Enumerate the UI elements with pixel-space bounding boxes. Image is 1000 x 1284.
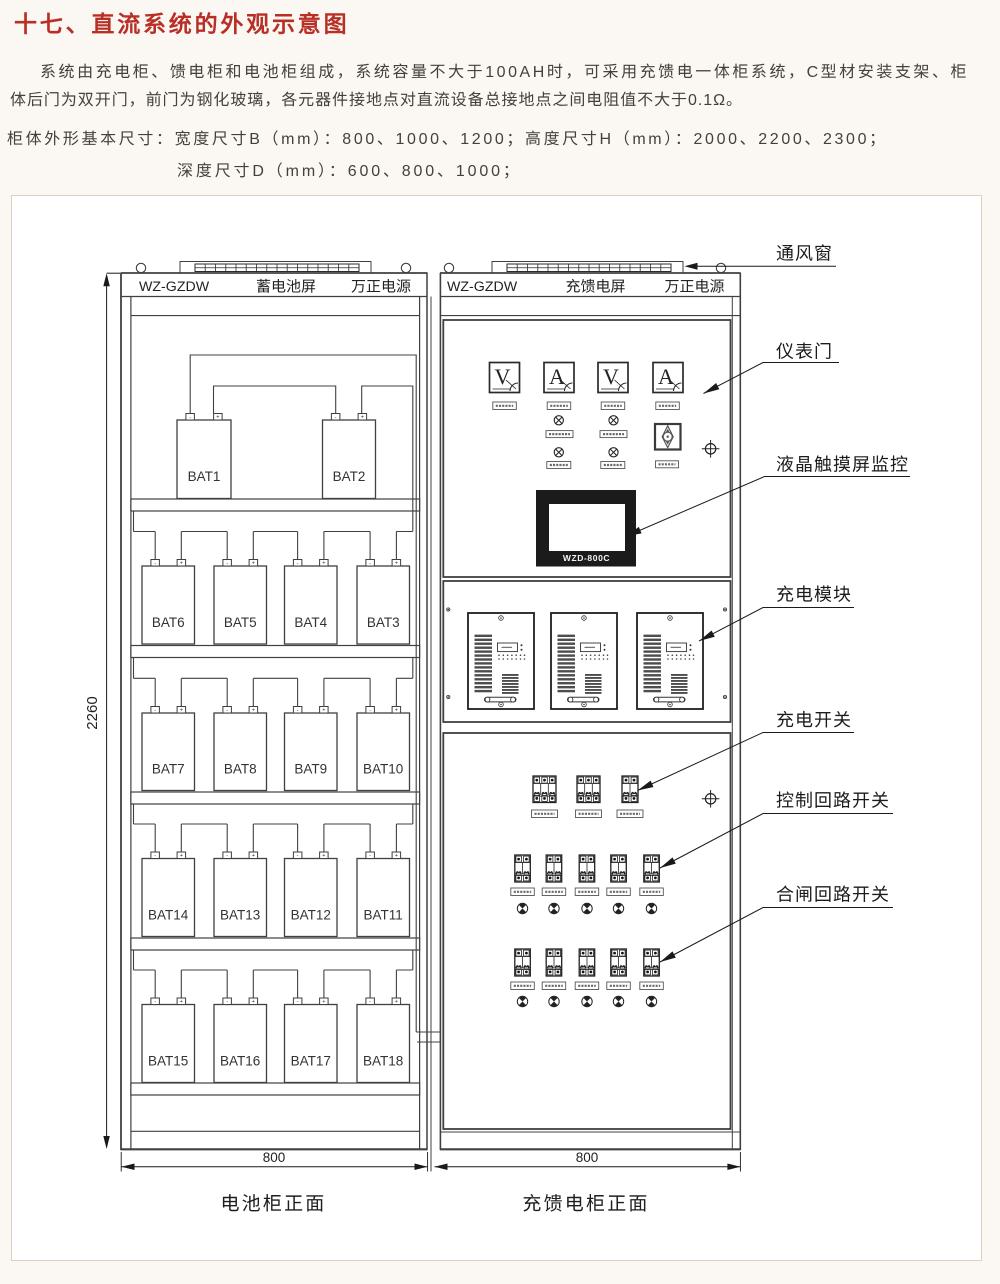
svg-text:BAT15: BAT15 — [148, 1053, 188, 1068]
svg-text:+: + — [395, 560, 398, 566]
svg-text:BAT17: BAT17 — [291, 1053, 331, 1068]
svg-text:-: - — [154, 560, 156, 566]
svg-text:充电开关: 充电开关 — [776, 706, 852, 732]
svg-text:+: + — [361, 414, 364, 420]
svg-text:A: A — [658, 364, 674, 389]
svg-text:+: + — [180, 853, 183, 859]
svg-text:BAT11: BAT11 — [364, 907, 403, 922]
svg-text:WZ-GZDW: WZ-GZDW — [447, 276, 518, 296]
svg-text:-: - — [369, 560, 371, 566]
svg-text:-: - — [297, 560, 299, 566]
svg-text:合闸回路开关: 合闸回路开关 — [776, 881, 890, 907]
svg-text:-: - — [226, 853, 228, 859]
svg-text:BAT5: BAT5 — [224, 615, 257, 630]
svg-text:-: - — [189, 414, 191, 420]
svg-text:-: - — [369, 853, 371, 859]
svg-text:+: + — [395, 853, 398, 859]
svg-text:BAT8: BAT8 — [224, 762, 257, 777]
svg-text:+: + — [322, 853, 325, 859]
svg-text:-: - — [154, 853, 156, 859]
svg-text:-: - — [335, 414, 337, 420]
svg-text:BAT12: BAT12 — [291, 907, 331, 922]
svg-text:充电模块: 充电模块 — [776, 581, 852, 607]
svg-text:-: - — [226, 560, 228, 566]
svg-text:-: - — [369, 999, 371, 1005]
svg-text:+: + — [252, 560, 255, 566]
svg-text:+: + — [322, 707, 325, 713]
svg-text:+: + — [322, 999, 325, 1005]
svg-text:WZD-800C: WZD-800C — [563, 553, 610, 563]
svg-text:+: + — [395, 999, 398, 1005]
svg-text:蓄电池屏: 蓄电池屏 — [256, 276, 316, 297]
svg-text:BAT13: BAT13 — [220, 907, 260, 922]
svg-text:800: 800 — [576, 1150, 599, 1165]
svg-text:A: A — [549, 364, 565, 389]
svg-text:BAT14: BAT14 — [148, 907, 189, 922]
svg-text:800: 800 — [263, 1150, 286, 1165]
svg-text:V: V — [603, 364, 619, 389]
svg-text:BAT2: BAT2 — [333, 469, 366, 484]
svg-text:-: - — [297, 853, 299, 859]
svg-text:BAT3: BAT3 — [367, 615, 400, 630]
svg-text:WZ-GZDW: WZ-GZDW — [139, 276, 210, 296]
svg-text:-: - — [226, 999, 228, 1005]
svg-text:-: - — [297, 707, 299, 713]
svg-text:+: + — [180, 707, 183, 713]
svg-text:电池柜正面: 电池柜正面 — [220, 1189, 326, 1216]
svg-text:充馈电屏: 充馈电屏 — [565, 276, 625, 297]
svg-text:+: + — [395, 707, 398, 713]
svg-text:通风窗: 通风窗 — [776, 240, 833, 266]
svg-text:BAT16: BAT16 — [220, 1053, 260, 1068]
svg-text:-: - — [297, 999, 299, 1005]
svg-text:+: + — [180, 560, 183, 566]
svg-text:仪表门: 仪表门 — [776, 338, 833, 364]
svg-text:-: - — [154, 999, 156, 1005]
svg-text:BAT4: BAT4 — [294, 615, 327, 630]
svg-text:BAT18: BAT18 — [363, 1053, 403, 1068]
svg-text:液晶触摸屏监控: 液晶触摸屏监控 — [776, 451, 909, 477]
svg-text:万正电源: 万正电源 — [351, 276, 411, 297]
svg-text:-: - — [369, 707, 371, 713]
svg-text:2260: 2260 — [84, 696, 101, 729]
svg-text:+: + — [252, 853, 255, 859]
svg-text:+: + — [252, 707, 255, 713]
svg-text:+: + — [252, 999, 255, 1005]
svg-text:BAT6: BAT6 — [152, 615, 185, 630]
svg-text:-: - — [154, 707, 156, 713]
svg-text:+: + — [322, 560, 325, 566]
svg-text:+: + — [216, 414, 219, 420]
svg-text:BAT10: BAT10 — [363, 762, 403, 777]
svg-text:V: V — [495, 364, 511, 389]
svg-text:-: - — [226, 707, 228, 713]
svg-text:BAT7: BAT7 — [152, 762, 185, 777]
svg-text:控制回路开关: 控制回路开关 — [776, 787, 890, 813]
svg-text:+: + — [180, 999, 183, 1005]
svg-text:万正电源: 万正电源 — [664, 276, 724, 297]
svg-text:BAT9: BAT9 — [294, 762, 327, 777]
svg-text:充馈电柜正面: 充馈电柜正面 — [522, 1189, 649, 1216]
svg-text:BAT1: BAT1 — [188, 469, 221, 484]
